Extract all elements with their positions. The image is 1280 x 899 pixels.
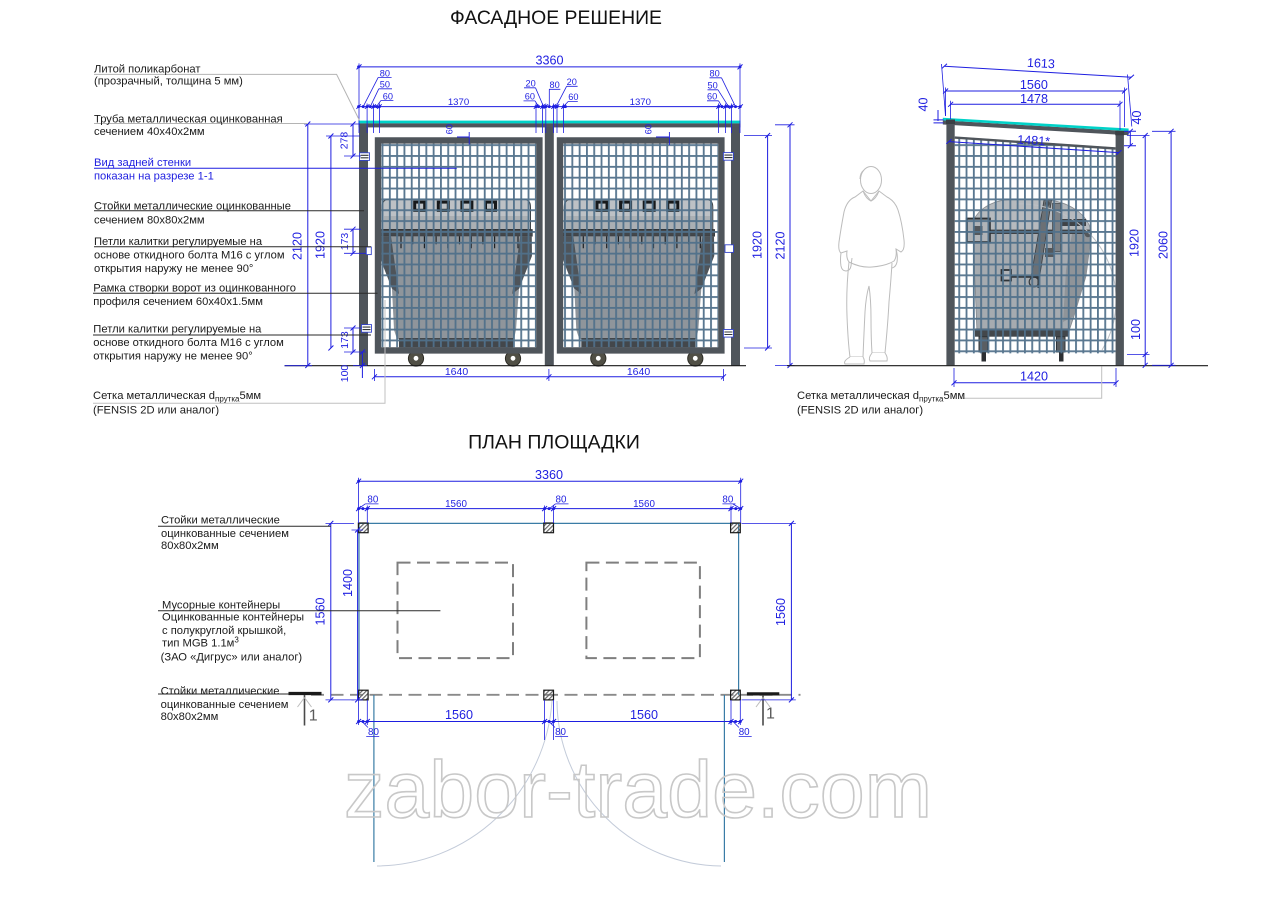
svg-text:Стойки металлические оцинкован: Стойки металлические оцинкованные: [94, 201, 291, 213]
svg-text:20: 20: [567, 77, 577, 87]
svg-text:тип MGB 1.1м3: тип MGB 1.1м3: [162, 636, 239, 650]
svg-text:сечением 40х40х2мм: сечением 40х40х2мм: [94, 126, 205, 138]
svg-text:1420: 1420: [1020, 370, 1048, 384]
svg-text:zabor-trade.com: zabor-trade.com: [344, 745, 932, 834]
svg-text:основе откидного болта М16 с у: основе откидного болта М16 с углом: [93, 337, 284, 349]
svg-text:оцинкованные сечением: оцинкованные сечением: [161, 528, 289, 540]
svg-text:80: 80: [368, 727, 379, 738]
svg-text:1: 1: [766, 706, 775, 723]
svg-text:80: 80: [556, 495, 567, 506]
svg-text:60: 60: [643, 124, 654, 134]
svg-text:Оцинкованные контейнеры: Оцинкованные контейнеры: [162, 612, 304, 624]
svg-text:Вид задней стенки: Вид задней стенки: [94, 157, 191, 169]
svg-text:Мусорные контейнеры: Мусорные контейнеры: [162, 599, 280, 611]
svg-text:(ЗАО «Дигрус» или аналог): (ЗАО «Дигрус» или аналог): [161, 651, 303, 663]
svg-text:278: 278: [339, 132, 351, 150]
svg-text:100: 100: [339, 365, 351, 383]
svg-text:(FENSIS 2D или аналог): (FENSIS 2D или аналог): [797, 404, 923, 416]
svg-text:80х80х2мм: 80х80х2мм: [161, 711, 219, 723]
svg-text:1560: 1560: [445, 499, 467, 510]
svg-text:ПЛАН ПЛОЩАДКИ: ПЛАН ПЛОЩАДКИ: [468, 432, 640, 454]
svg-text:60: 60: [444, 124, 455, 134]
svg-text:1478: 1478: [1020, 92, 1048, 106]
svg-text:80: 80: [380, 68, 390, 78]
svg-text:80: 80: [555, 727, 566, 738]
svg-text:60: 60: [525, 92, 535, 102]
svg-text:20: 20: [525, 79, 535, 89]
svg-text:оцинкованные сечением: оцинкованные сечением: [161, 699, 289, 711]
svg-text:80х80х2мм: 80х80х2мм: [161, 540, 219, 552]
svg-text:1560: 1560: [633, 499, 655, 510]
svg-text:50: 50: [708, 81, 718, 91]
svg-text:Стойки металлические: Стойки металлические: [161, 685, 280, 697]
svg-text:100: 100: [1129, 319, 1143, 340]
svg-text:открытия наружу не менее 90°: открытия наружу не менее 90°: [93, 350, 252, 362]
svg-text:1640: 1640: [627, 366, 651, 378]
svg-text:с полукруглой крышкой,: с полукруглой крышкой,: [162, 625, 286, 637]
svg-text:Петли калитки регулируемые на: Петли калитки регулируемые на: [94, 236, 263, 248]
svg-text:Рамка створки ворот из оцинков: Рамка створки ворот из оцинкованного: [93, 282, 296, 294]
svg-text:открытия наружу не менее 90°: открытия наружу не менее 90°: [94, 263, 253, 275]
svg-text:1920: 1920: [314, 231, 328, 259]
svg-text:80: 80: [549, 80, 559, 90]
svg-text:профиля сечением 60х40х1.5мм: профиля сечением 60х40х1.5мм: [93, 296, 263, 308]
svg-text:60: 60: [568, 92, 578, 102]
svg-text:показан на разрезе 1-1: показан на разрезе 1-1: [94, 171, 214, 183]
svg-text:1920: 1920: [751, 231, 765, 259]
svg-text:1560: 1560: [1020, 78, 1048, 92]
svg-text:(прозрачный, толщина 5 мм): (прозрачный, толщина 5 мм): [94, 76, 243, 88]
svg-text:1481*: 1481*: [1017, 133, 1051, 149]
svg-text:60: 60: [383, 91, 393, 101]
svg-text:1560: 1560: [314, 597, 328, 625]
svg-text:2060: 2060: [1157, 231, 1171, 259]
svg-text:173: 173: [339, 233, 351, 251]
svg-text:2120: 2120: [774, 231, 788, 259]
svg-text:80: 80: [367, 495, 378, 506]
svg-text:50: 50: [380, 80, 390, 90]
svg-text:1560: 1560: [774, 598, 788, 626]
svg-text:основе откидного болта М16 с у: основе откидного болта М16 с углом: [94, 249, 285, 261]
svg-text:80: 80: [722, 495, 733, 506]
svg-text:40: 40: [1130, 110, 1144, 124]
svg-text:Стойки металлические: Стойки металлические: [161, 515, 280, 527]
svg-text:1560: 1560: [630, 708, 658, 722]
svg-text:1370: 1370: [448, 97, 469, 108]
svg-text:80: 80: [710, 69, 720, 79]
svg-text:Литой поликарбонат: Литой поликарбонат: [94, 64, 200, 76]
svg-text:173: 173: [339, 331, 351, 349]
svg-text:80: 80: [739, 727, 750, 738]
svg-text:3360: 3360: [535, 468, 563, 482]
svg-text:1: 1: [309, 708, 318, 725]
svg-text:Труба металлическая оцинкованн: Труба металлическая оцинкованная: [94, 113, 283, 125]
svg-text:60: 60: [707, 92, 717, 102]
svg-text:3360: 3360: [535, 53, 563, 67]
svg-text:40: 40: [916, 97, 930, 111]
svg-text:1613: 1613: [1027, 56, 1056, 72]
svg-text:ФАСАДНОЕ РЕШЕНИЕ: ФАСАДНОЕ РЕШЕНИЕ: [450, 7, 662, 29]
svg-text:1640: 1640: [445, 366, 469, 378]
svg-text:1920: 1920: [1128, 229, 1142, 257]
svg-text:2120: 2120: [291, 232, 305, 260]
svg-text:сечением 80х80х2мм: сечением 80х80х2мм: [94, 214, 205, 226]
svg-text:(FENSIS 2D или аналог): (FENSIS 2D или аналог): [93, 404, 219, 416]
svg-text:Петли калитки регулируемые на: Петли калитки регулируемые на: [93, 323, 262, 335]
svg-text:1400: 1400: [341, 569, 355, 597]
svg-text:1560: 1560: [445, 708, 473, 722]
svg-text:1370: 1370: [630, 97, 651, 108]
